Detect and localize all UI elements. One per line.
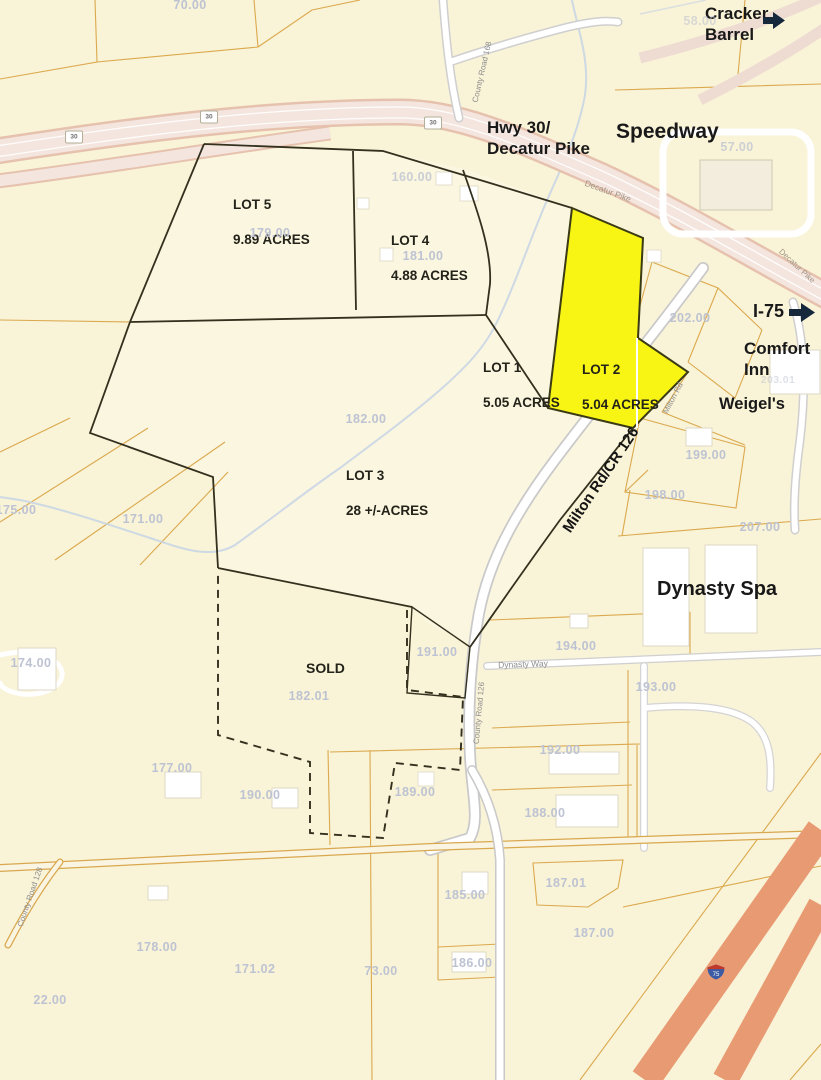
lot4-name: LOT 4 [391, 232, 468, 250]
hwy30-label: Hwy 30/ Decatur Pike [487, 117, 590, 160]
parcel-number: 188.00 [525, 806, 566, 820]
parcel-number: 175.00 [0, 503, 36, 517]
parcel-number: 186.00 [452, 956, 493, 970]
lot3-acres: 28 +/-ACRES [346, 502, 428, 520]
parcel-number: 178.00 [137, 940, 178, 954]
svg-text:75: 75 [713, 972, 720, 978]
parcel-number: 191.00 [417, 645, 458, 659]
parcel-number: 189.00 [395, 785, 436, 799]
parcel-number: 190.00 [240, 788, 281, 802]
parcel-number: 22.00 [33, 993, 66, 1007]
parcel-number: 203.01 [761, 374, 796, 386]
parcel-number: 179.00 [250, 226, 291, 240]
parcel-number: 58.00 [683, 14, 716, 28]
sold-label: SOLD [306, 659, 345, 677]
lot3-name: LOT 3 [346, 467, 428, 485]
weigels-building [686, 428, 712, 446]
i75-interstate [645, 830, 821, 1080]
map-canvas [0, 0, 821, 1080]
lot1-label: LOT 1 5.05 ACRES [483, 341, 560, 430]
creek-branch [640, 0, 706, 14]
parcel-number: 171.00 [123, 512, 164, 526]
route-30-shield: 30 [424, 117, 442, 130]
i75-shield-icon: 75 [708, 965, 725, 980]
route-30-shield: 30 [65, 131, 83, 144]
parcel-number: 185.00 [445, 888, 486, 902]
parcel-number: 194.00 [556, 639, 597, 653]
arrow-right-icon [763, 12, 786, 29]
lot5-name: LOT 5 [233, 196, 310, 214]
plat-map: Cracker Barrel Speedway Hwy 30/ Decatur … [0, 0, 821, 1080]
lot3-label: LOT 3 28 +/-ACRES [346, 449, 428, 538]
i75-label: I-75 [753, 300, 784, 323]
parcel-number: 187.00 [574, 926, 615, 940]
lot2-acres: 5.04 ACRES [582, 396, 659, 414]
parcel-number: 177.00 [152, 761, 193, 775]
dynasty-way-label: Dynasty Way [498, 658, 548, 670]
lot2-name: LOT 2 [582, 361, 659, 379]
parcel-number: 202.00 [670, 311, 711, 325]
parcel-number: 182.00 [346, 412, 387, 426]
parcel-number: 174.00 [11, 656, 52, 670]
speedway-label: Speedway [616, 119, 719, 145]
parcel-number: 192.00 [540, 743, 581, 757]
parcel-number: 199.00 [686, 448, 727, 462]
parcel-number: 182.01 [289, 689, 330, 703]
speedway-building [700, 160, 772, 210]
parcel-number: 160.00 [392, 170, 433, 184]
lot5-label: LOT 5 9.89 ACRES [233, 178, 310, 267]
dynasty-spa-label: Dynasty Spa [657, 577, 777, 602]
parcel-number: 171.02 [235, 962, 276, 976]
arrow-right-icon [789, 303, 815, 322]
parcel-number: 70.00 [173, 0, 206, 12]
lot2-label: LOT 2 5.04 ACRES [582, 343, 659, 432]
weigels-label: Weigel's [719, 394, 785, 415]
parcel-number: 181.00 [403, 249, 444, 263]
lot1-name: LOT 1 [483, 359, 560, 377]
parcel-number: 193.00 [636, 680, 677, 694]
parcel-number: 73.00 [364, 964, 397, 978]
parcel-number: 187.01 [546, 876, 587, 890]
lot4-acres: 4.88 ACRES [391, 267, 468, 285]
parcel-number: 198.00 [645, 488, 686, 502]
parcel-number: 207.00 [740, 520, 781, 534]
lot1-acres: 5.05 ACRES [483, 394, 560, 412]
route-30-shield: 30 [200, 111, 218, 124]
parcel-number: 57.00 [720, 140, 753, 154]
